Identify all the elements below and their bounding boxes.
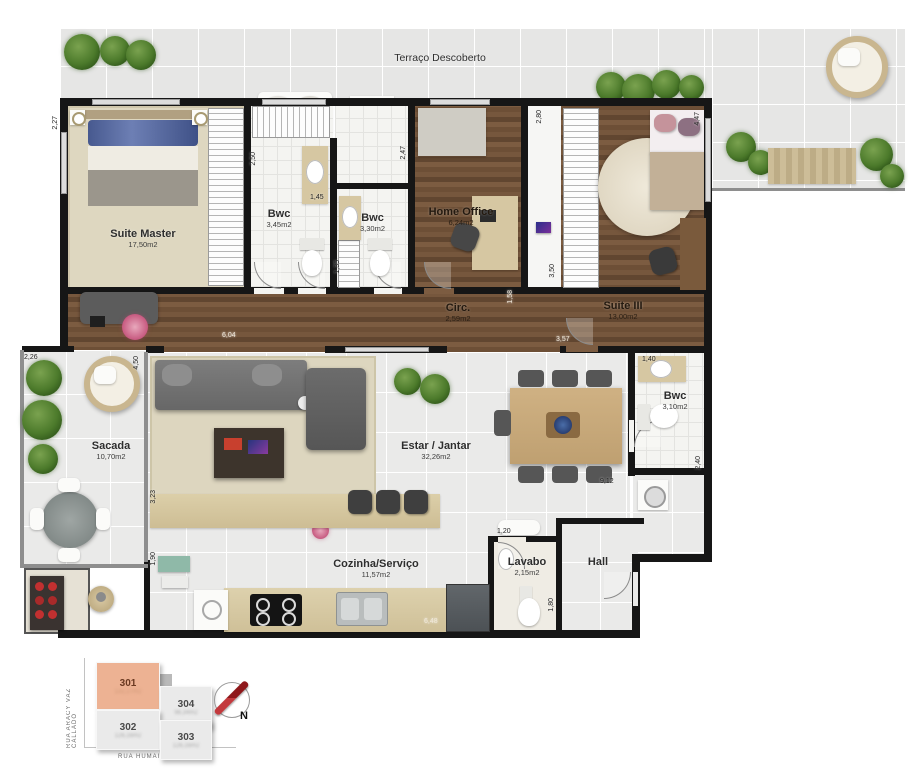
toilet: [370, 250, 390, 276]
plant: [652, 70, 681, 99]
plant: [64, 34, 100, 70]
sink: [498, 548, 514, 570]
balcony-railing: [144, 352, 148, 562]
stool: [404, 490, 428, 514]
outdoor-chair: [96, 508, 110, 530]
toilet-tank: [638, 404, 650, 430]
keyplan-unit-301[interactable]: 301 132,27m2: [96, 662, 160, 710]
wall: [628, 352, 635, 476]
toilet: [302, 250, 322, 276]
washer-door: [644, 486, 666, 508]
dimension-label: 2,47: [400, 146, 407, 160]
dimension-label: 6,48: [424, 618, 438, 625]
plant: [28, 444, 58, 474]
wine-bottle: [35, 610, 44, 619]
dishwasher-dial: [202, 600, 222, 620]
wall: [22, 346, 74, 352]
plant: [22, 400, 62, 440]
bed-blanket: [650, 152, 704, 210]
wall: [146, 346, 164, 353]
chair-cushion: [94, 366, 116, 384]
wine-bottle: [48, 610, 57, 619]
unit-number: 304: [178, 699, 195, 710]
table-decor: [224, 438, 242, 450]
keyplan-unit-302[interactable]: 302 126,16m2: [96, 710, 160, 750]
cabinet: [418, 108, 486, 156]
chaise-sofa: [306, 368, 366, 450]
compass-north-label: N: [240, 710, 248, 722]
dimension-label: 3,57: [556, 336, 570, 343]
wall: [521, 98, 528, 294]
window: [705, 118, 711, 202]
toilet: [518, 598, 540, 626]
room-circ-floor: [68, 290, 708, 352]
closet-niche-floor: [525, 104, 561, 290]
balcony-railing: [20, 350, 24, 568]
burner: [282, 612, 296, 626]
keyplan-unit-303[interactable]: 303 126,16m2: [160, 720, 212, 760]
tray: [158, 556, 190, 572]
centerpiece-bowl: [554, 416, 572, 434]
wall: [335, 183, 413, 189]
dining-chair: [586, 370, 612, 387]
unit-area: 98,34m2: [174, 710, 197, 716]
sink-basin: [341, 598, 359, 620]
closet: [338, 240, 360, 288]
dining-chair: [518, 466, 544, 483]
wine-bottle: [48, 596, 57, 605]
dimension-label: 1,20: [497, 528, 511, 535]
dining-chair: [552, 370, 578, 387]
dimension-label: 1,80: [548, 598, 555, 612]
wall: [408, 98, 415, 294]
window: [430, 99, 490, 105]
outdoor-chair: [58, 478, 80, 492]
pink-rug: [122, 314, 148, 340]
unit-number: 303: [178, 732, 195, 743]
dimension-label: 2,80: [536, 110, 543, 124]
closet: [252, 106, 330, 138]
sink-basin: [364, 598, 382, 620]
lamp: [194, 112, 208, 126]
plant: [679, 75, 704, 100]
bed-blanket: [88, 170, 198, 206]
dimension-label: 1,58: [507, 290, 514, 304]
door-gap: [566, 346, 598, 352]
dimension-label: 1,45: [310, 194, 324, 201]
plant: [26, 360, 62, 396]
sink: [306, 160, 324, 184]
door-gap: [629, 420, 634, 452]
balcony-railing: [20, 564, 148, 568]
bed-headboard: [84, 110, 202, 119]
dimension-label: 1,40: [642, 356, 656, 363]
plant: [394, 368, 421, 395]
window: [61, 132, 67, 194]
dimension-label: 4,50: [133, 356, 140, 370]
bed-pillows: [88, 120, 198, 146]
window: [92, 99, 180, 105]
entry-door-gap: [633, 572, 638, 606]
plant: [420, 374, 450, 404]
keyplan: RUA ARACY VAZ CALLADO RUA HUMAITÁ 301 13…: [56, 650, 266, 766]
floor-plan: Terraço Descoberto: [0, 0, 917, 768]
dimension-label: 2,26: [24, 354, 38, 361]
unit-number: 302: [120, 722, 137, 733]
wine-bottle: [35, 596, 44, 605]
plant: [126, 40, 156, 70]
pillow: [654, 114, 676, 132]
dimension-label: 4,47: [694, 112, 701, 126]
dimension-label: 3,23: [150, 490, 157, 504]
unit-area: 132,27m2: [115, 689, 142, 695]
unit-area: 126,16m2: [115, 733, 142, 739]
street-label-left: RUA ARACY VAZ CALLADO: [66, 662, 78, 748]
wall: [556, 518, 644, 524]
wardrobe: [563, 108, 599, 288]
dimension-label: 2,40: [695, 456, 702, 470]
decor: [96, 592, 106, 602]
sun-lounger: [768, 148, 856, 184]
toilet: [650, 404, 678, 428]
sink: [342, 206, 358, 228]
dimension-label: 9,12: [600, 478, 614, 485]
unit-number: 301: [120, 678, 137, 689]
dimension-label: 3,50: [549, 264, 556, 278]
door-gap: [498, 537, 526, 542]
dimension-label: 2,27: [52, 116, 59, 130]
plant: [880, 164, 904, 188]
lamp: [72, 112, 86, 126]
bed-sheet: [88, 146, 198, 172]
dining-chair: [518, 370, 544, 387]
toilet-tank: [300, 238, 324, 250]
refrigerator: [446, 584, 490, 632]
outdoor-chair: [30, 508, 44, 530]
round-lounge-chair: [826, 36, 888, 98]
burner: [256, 612, 270, 626]
window: [262, 99, 326, 105]
dining-chair: [552, 466, 578, 483]
rattan-chair: [84, 356, 140, 412]
outdoor-table: [42, 492, 98, 548]
wall: [144, 560, 150, 636]
dimension-label: 6,04: [222, 332, 236, 339]
wall: [638, 554, 712, 562]
burner: [256, 598, 270, 612]
window: [345, 347, 429, 352]
tablet: [536, 222, 551, 233]
dimension-label: 1,90: [150, 552, 157, 566]
dimension-label: 2,50: [250, 152, 257, 166]
unit-area: 126,16m2: [173, 743, 200, 749]
wall: [244, 98, 251, 294]
desk: [680, 218, 706, 290]
dining-chair: [494, 410, 511, 436]
toilet-tank: [368, 238, 392, 250]
sofa-cushion: [162, 364, 192, 386]
dimension-label: 1,35: [334, 260, 341, 274]
burner: [282, 598, 296, 612]
keyplan-axis: [84, 658, 85, 748]
wardrobe: [208, 108, 244, 286]
laptop: [90, 316, 105, 327]
table-decor: [248, 440, 268, 454]
sofa-cushion: [252, 364, 282, 386]
stool: [376, 490, 400, 514]
wall: [556, 518, 562, 636]
tray: [162, 576, 188, 588]
stool: [348, 490, 372, 514]
wine-bottle: [48, 582, 57, 591]
terrace-edge: [712, 188, 905, 191]
outdoor-chair: [58, 548, 80, 562]
wine-bottle: [35, 582, 44, 591]
laptop: [480, 210, 496, 222]
chair-cushion: [838, 48, 860, 66]
